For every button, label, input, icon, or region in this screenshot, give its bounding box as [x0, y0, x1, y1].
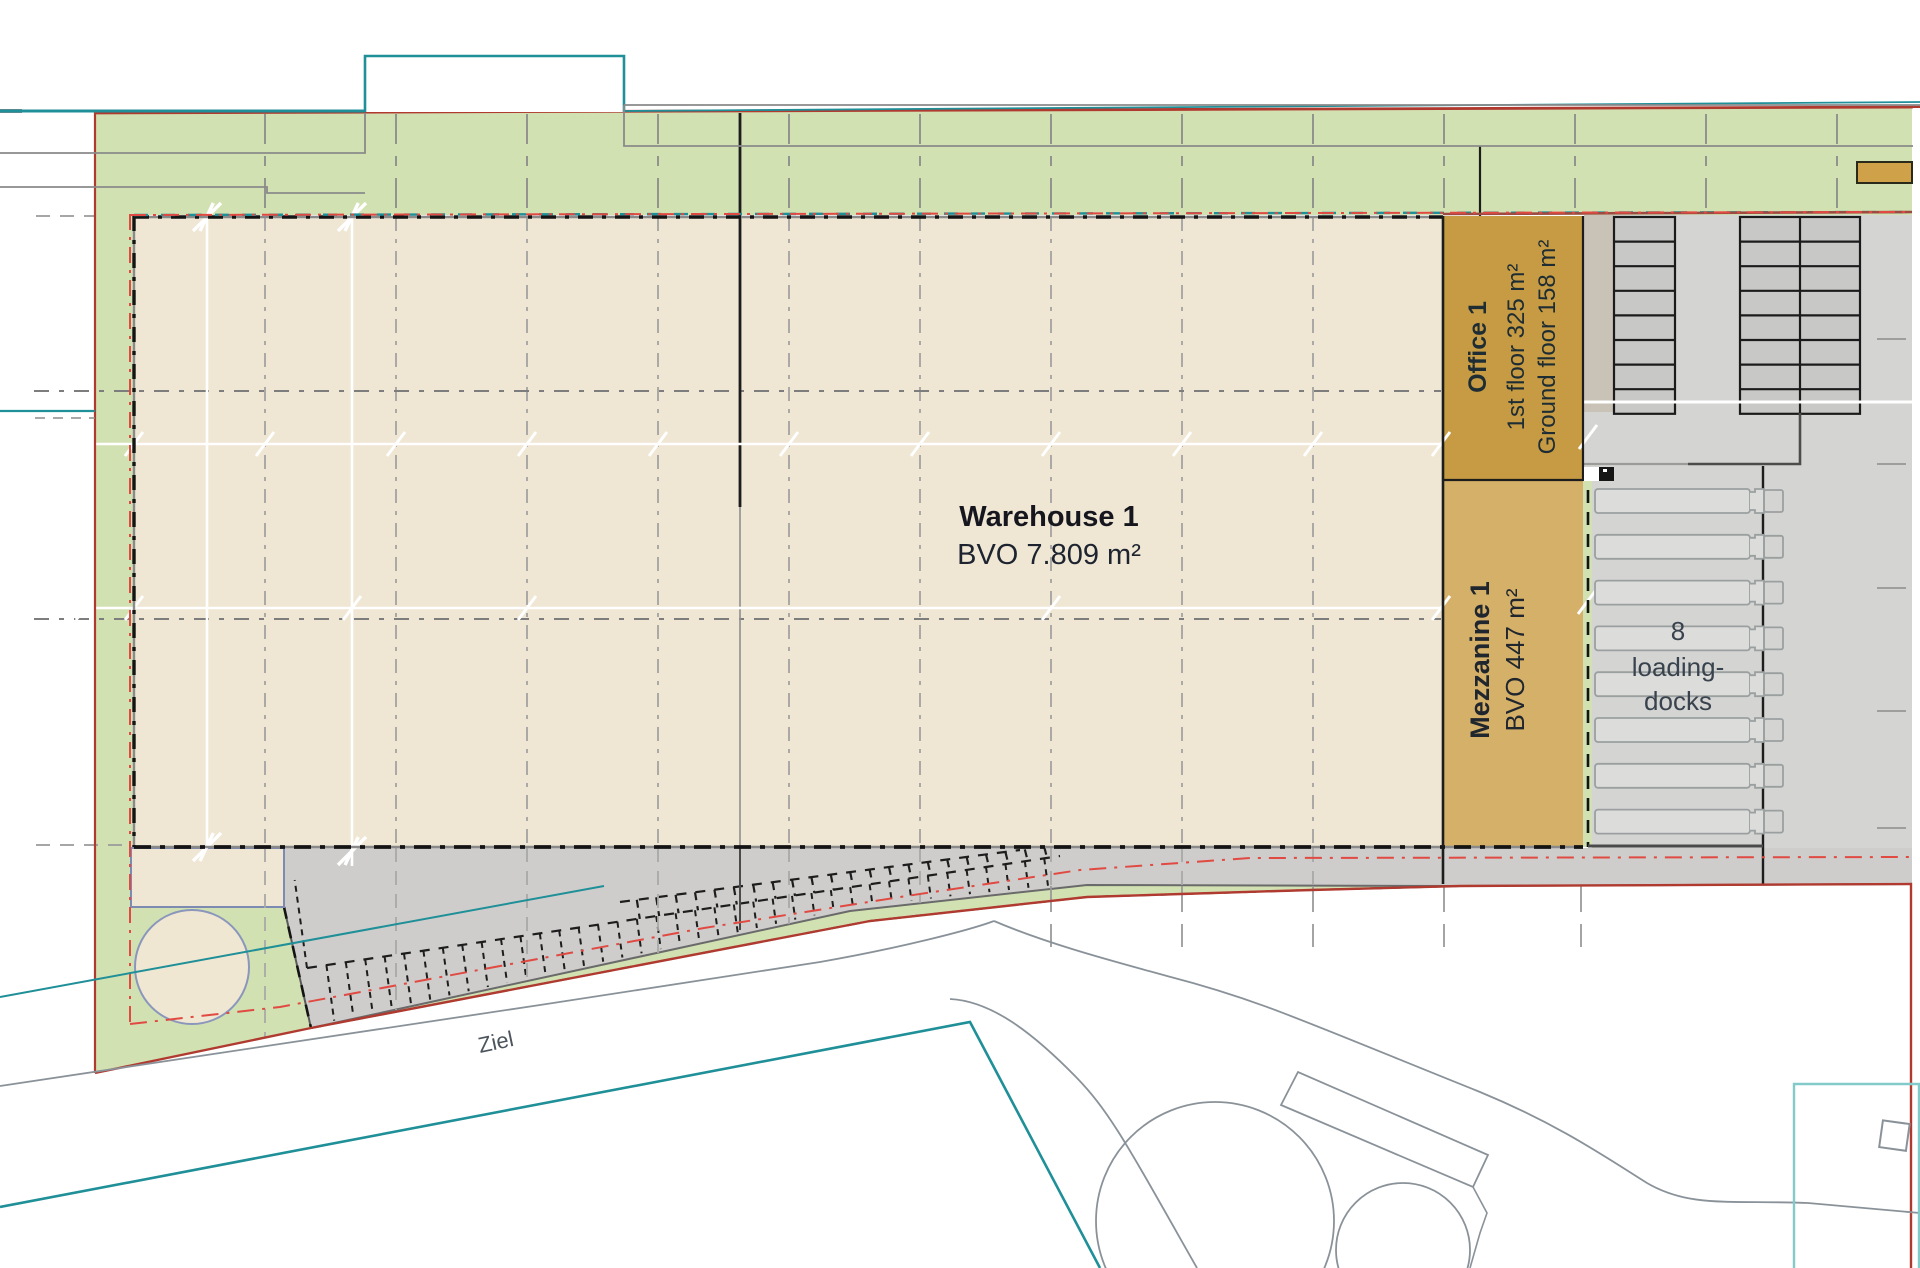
svg-text:Warehouse 1: Warehouse 1 — [959, 501, 1138, 533]
svg-text:8: 8 — [1671, 616, 1685, 646]
svg-text:docks: docks — [1644, 686, 1712, 716]
svg-text:BVO 447 m²: BVO 447 m² — [1500, 588, 1530, 731]
svg-text:Office 1: Office 1 — [1464, 301, 1492, 393]
svg-text:1st floor 325 m²: 1st floor 325 m² — [1503, 264, 1530, 431]
svg-text:Ground floor 158 m²: Ground floor 158 m² — [1534, 240, 1561, 455]
svg-text:Mezzanine 1: Mezzanine 1 — [1465, 581, 1495, 739]
svg-text:loading-: loading- — [1632, 652, 1725, 682]
svg-text:BVO 7.809 m²: BVO 7.809 m² — [957, 539, 1141, 571]
